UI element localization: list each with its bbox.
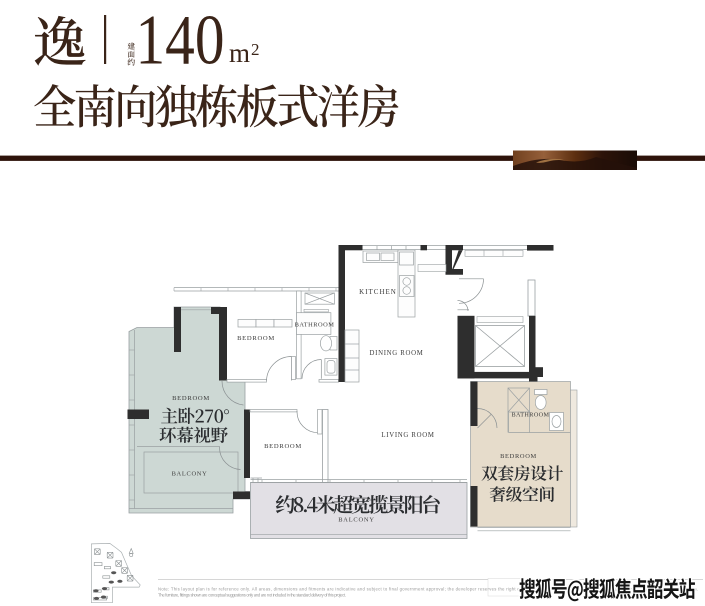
svg-text:BATHROOM: BATHROOM <box>512 412 550 419</box>
svg-text:140: 140 <box>136 2 225 80</box>
svg-text:BEDROOM: BEDROOM <box>237 335 275 342</box>
svg-text:BALCONY: BALCONY <box>172 471 208 478</box>
svg-text:m: m <box>229 38 250 68</box>
svg-text:BEDROOM: BEDROOM <box>500 453 537 460</box>
svg-text:2: 2 <box>251 40 260 59</box>
svg-text:LIVING ROOM: LIVING ROOM <box>381 432 434 439</box>
svg-text:BALCONY: BALCONY <box>338 517 375 524</box>
svg-text:BATHROOM: BATHROOM <box>295 322 335 329</box>
svg-text:DINING ROOM: DINING ROOM <box>370 350 424 357</box>
svg-text:The furniture, fittings shown: The furniture, fittings shown are concep… <box>158 592 346 597</box>
svg-text:KITCHEN: KITCHEN <box>359 288 397 296</box>
svg-text:BEDROOM: BEDROOM <box>172 395 210 402</box>
svg-text:BEDROOM: BEDROOM <box>264 443 302 450</box>
